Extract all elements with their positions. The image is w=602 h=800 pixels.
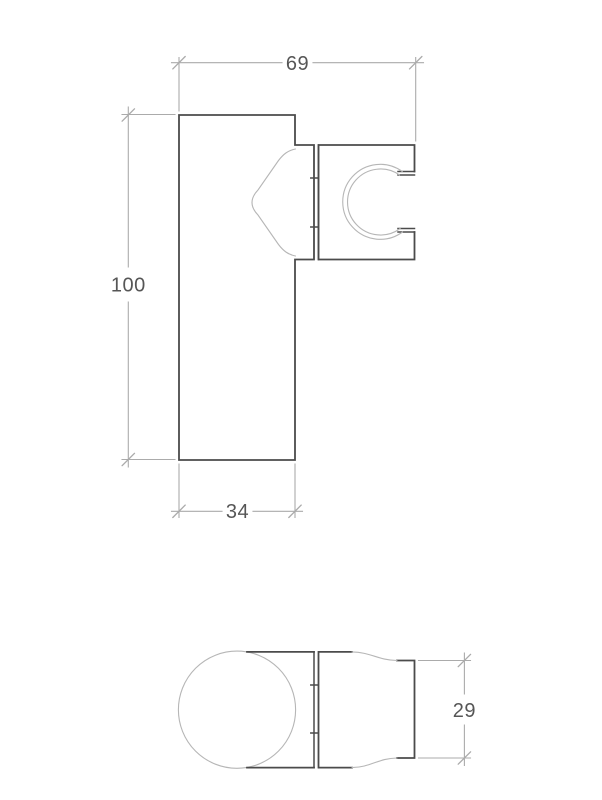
dimension-plate-width: 34 xyxy=(172,464,303,523)
wall-plate-outline xyxy=(179,115,314,460)
cone-profile xyxy=(252,149,296,256)
clamp-block-outline xyxy=(319,145,415,260)
clamp-ring xyxy=(343,164,403,239)
wall-plate-circle xyxy=(178,651,295,768)
dim-label-total-width: 69 xyxy=(286,53,309,75)
technical-drawing-page: 69 100 34 xyxy=(0,0,602,800)
clamp-waist-curves xyxy=(352,652,397,768)
dimension-total-width: 69 xyxy=(172,53,424,141)
clamp-top-outline xyxy=(319,652,415,768)
shower-holder-dimension-drawing: 69 100 34 xyxy=(0,0,602,800)
dimension-total-height: 100 xyxy=(111,107,175,467)
dimension-holder-width: 29 xyxy=(419,653,477,766)
plan-view: 29 xyxy=(178,651,476,768)
clamp-top-dark-edges xyxy=(319,652,415,768)
clamp-ring-outer-arc xyxy=(343,164,403,239)
dim-label-holder-width: 29 xyxy=(453,700,476,722)
side-elevation-view: 69 100 34 xyxy=(111,53,424,523)
clamp-slot-lines xyxy=(398,172,415,233)
boss-body-lines xyxy=(247,652,314,768)
clamp-ring-inner-arc xyxy=(348,169,401,235)
dim-label-plate-width: 34 xyxy=(226,501,249,523)
dim-label-total-height: 100 xyxy=(111,275,146,297)
